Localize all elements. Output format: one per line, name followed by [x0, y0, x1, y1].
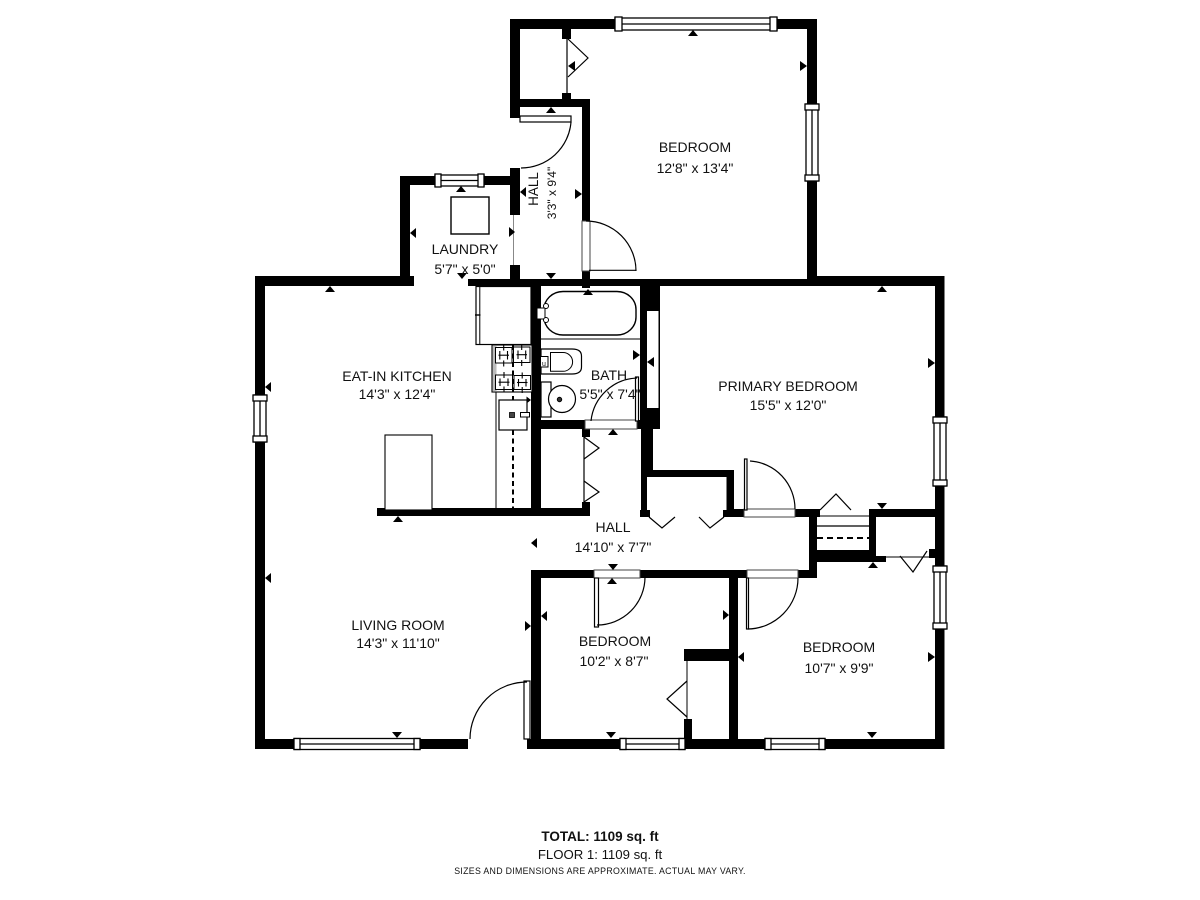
- svg-text:FLOOR 1: 1109 sq. ft: FLOOR 1: 1109 sq. ft: [538, 847, 663, 862]
- svg-text:TOTAL: 1109 sq. ft: TOTAL: 1109 sq. ft: [541, 829, 659, 844]
- svg-text:5'5" x 7'4": 5'5" x 7'4": [579, 386, 640, 402]
- svg-text:u: u: [542, 361, 546, 368]
- svg-text:SIZES AND DIMENSIONS ARE APPRO: SIZES AND DIMENSIONS ARE APPROXIMATE. AC…: [454, 866, 746, 876]
- svg-text:LIVING ROOM: LIVING ROOM: [351, 617, 444, 633]
- svg-text:HALL: HALL: [595, 519, 630, 535]
- svg-text:14'3" x 11'10": 14'3" x 11'10": [356, 635, 440, 651]
- svg-text:5'7" x 5'0": 5'7" x 5'0": [434, 261, 495, 277]
- svg-text:10'2" x 8'7": 10'2" x 8'7": [580, 653, 649, 669]
- svg-text:3'3" x 9'4": 3'3" x 9'4": [545, 167, 559, 219]
- svg-text:12'8" x 13'4": 12'8" x 13'4": [657, 160, 734, 176]
- svg-text:15'5" x 12'0": 15'5" x 12'0": [750, 397, 827, 413]
- svg-text:PRIMARY BEDROOM: PRIMARY BEDROOM: [718, 378, 858, 394]
- svg-text:14'10" x 7'7": 14'10" x 7'7": [575, 539, 652, 555]
- svg-text:BATH: BATH: [591, 367, 627, 383]
- svg-text:HALL: HALL: [526, 172, 541, 206]
- svg-text:14'3" x 12'4": 14'3" x 12'4": [359, 386, 436, 402]
- svg-text:BEDROOM: BEDROOM: [579, 633, 651, 649]
- svg-text:EAT-IN KITCHEN: EAT-IN KITCHEN: [342, 368, 451, 384]
- svg-text:LAUNDRY: LAUNDRY: [432, 241, 499, 257]
- svg-text:BEDROOM: BEDROOM: [803, 639, 875, 655]
- svg-text:10'7" x 9'9": 10'7" x 9'9": [805, 660, 874, 676]
- svg-text:BEDROOM: BEDROOM: [659, 139, 731, 155]
